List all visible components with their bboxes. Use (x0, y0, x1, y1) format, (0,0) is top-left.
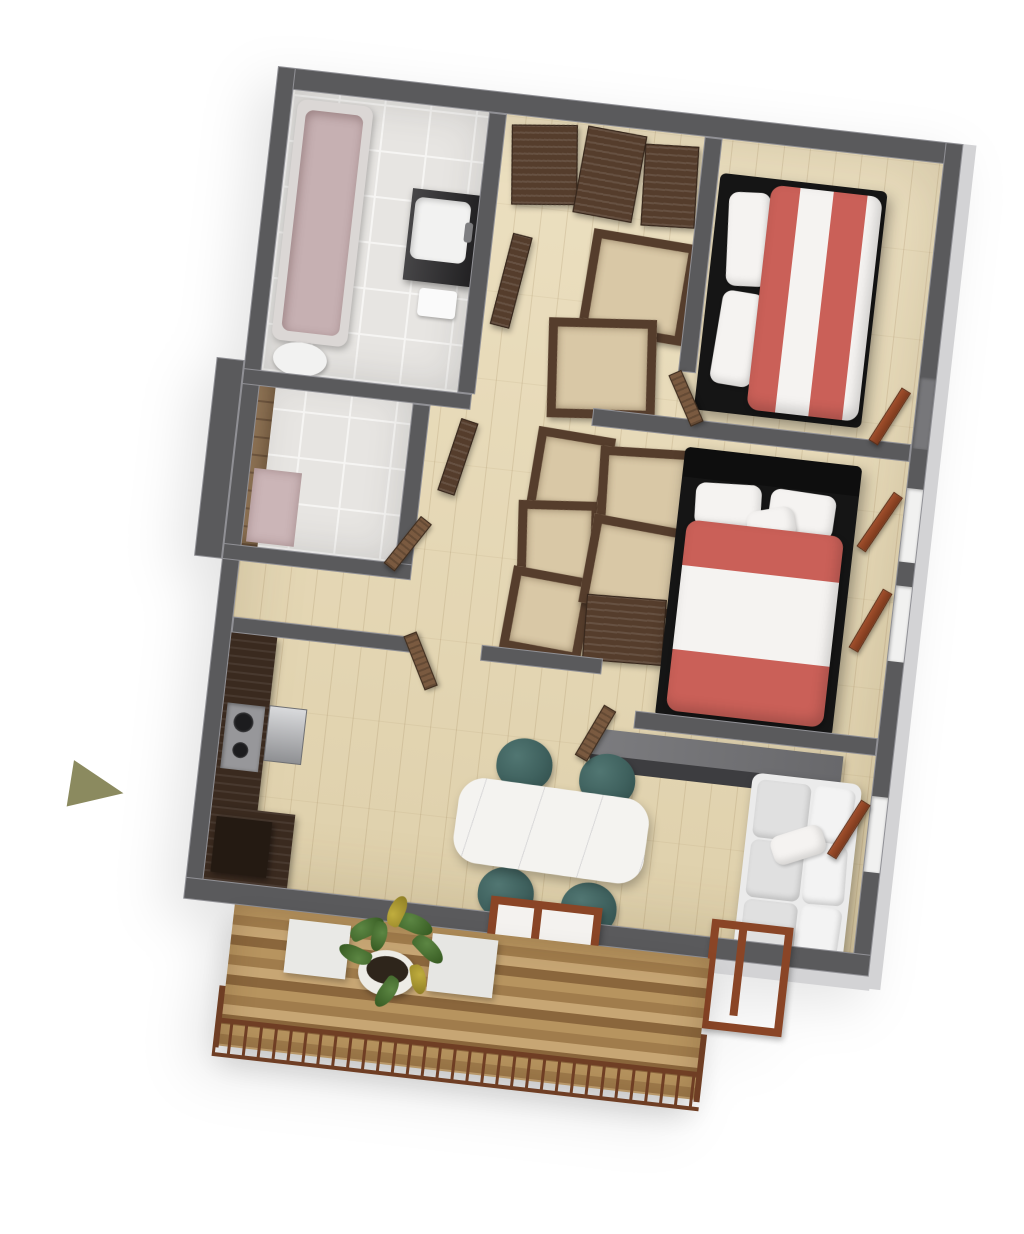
floor-plan-screenshot (0, 0, 1024, 1234)
shower-mat (246, 468, 302, 547)
orientation-arrow-icon (67, 760, 128, 815)
kitchen-tall-unit (210, 816, 272, 878)
wardrobe-panel (640, 144, 699, 229)
planter-box (426, 933, 498, 998)
bedroom-2-duvet (666, 519, 845, 728)
bathroom-top-towel (417, 287, 458, 319)
wardrobe-panel (511, 125, 578, 206)
apartment-plan (164, 66, 964, 1148)
balcony-door-frame (700, 919, 794, 1038)
oven (263, 705, 307, 765)
wardrobe-panel (582, 594, 667, 666)
bathroom-top-sink (409, 196, 472, 264)
wardrobe-box (547, 317, 658, 420)
